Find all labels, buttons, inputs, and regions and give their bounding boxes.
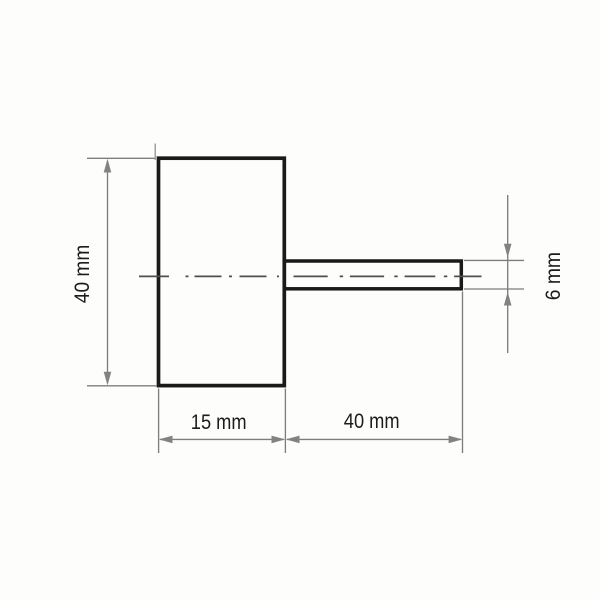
svg-text:40 mm: 40 mm (344, 410, 400, 434)
svg-text:15 mm: 15 mm (191, 411, 247, 435)
svg-text:6 mm: 6 mm (541, 252, 565, 300)
svg-text:40 mm: 40 mm (71, 245, 94, 303)
